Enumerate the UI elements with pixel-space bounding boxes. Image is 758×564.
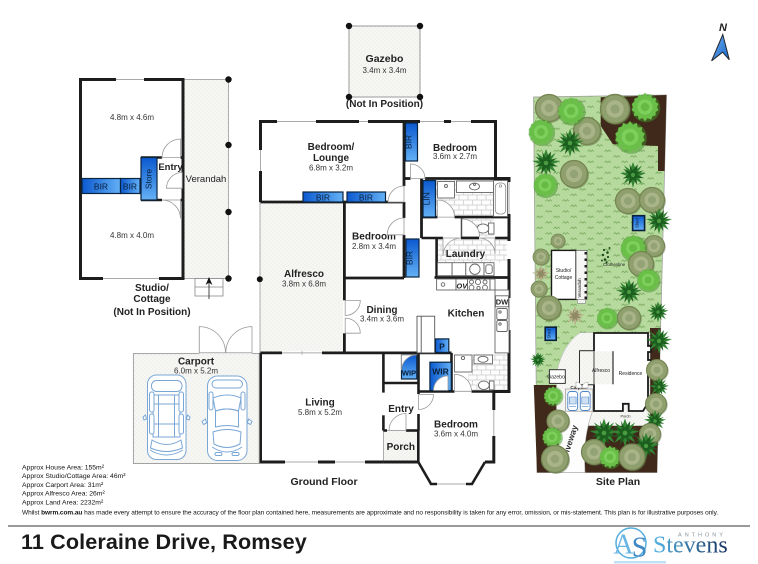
svg-text:Store: Store	[144, 169, 154, 190]
svg-text:DW: DW	[496, 298, 509, 307]
svg-text:BIR: BIR	[359, 193, 373, 203]
svg-text:Approx Carport Area: 31m²: Approx Carport Area: 31m²	[22, 482, 104, 489]
svg-text:BIR: BIR	[94, 182, 108, 192]
svg-text:Verandah: Verandah	[577, 278, 582, 298]
svg-text:Bedroom/: Bedroom/	[308, 142, 355, 153]
svg-text:WIP: WIP	[402, 369, 416, 378]
svg-text:3.4m x 3.6m: 3.4m x 3.6m	[360, 315, 404, 324]
svg-text:Living: Living	[305, 398, 334, 409]
svg-text:Kitchen: Kitchen	[448, 309, 485, 320]
svg-text:Studio/: Studio/	[135, 283, 169, 294]
svg-text:BIR: BIR	[405, 251, 415, 265]
svg-text:Alfresco: Alfresco	[592, 368, 610, 374]
svg-text:Studio/: Studio/	[556, 268, 572, 274]
svg-text:Verandah: Verandah	[186, 174, 227, 185]
svg-text:Entry: Entry	[388, 404, 414, 415]
svg-text:Shed: Shed	[635, 218, 640, 228]
svg-text:3.8m x 6.8m: 3.8m x 6.8m	[282, 280, 326, 289]
svg-text:Stevens: Stevens	[653, 533, 728, 559]
svg-text:(Not In Position): (Not In Position)	[113, 307, 190, 318]
svg-text:Gazebo: Gazebo	[547, 375, 565, 381]
svg-text:Approx Studio/Cottage Area: 46: Approx Studio/Cottage Area: 46m²	[22, 473, 126, 480]
svg-text:BIR: BIR	[123, 182, 137, 192]
svg-text:Whilst bwrm.com.au has made ev: Whilst bwrm.com.au has made every attemp…	[22, 510, 718, 517]
svg-text:3.4m x 3.4m: 3.4m x 3.4m	[362, 66, 406, 75]
svg-text:5.8m x 5.2m: 5.8m x 5.2m	[298, 408, 342, 417]
svg-text:N: N	[719, 22, 728, 34]
svg-text:BIR: BIR	[316, 193, 330, 203]
svg-text:Site Plan: Site Plan	[596, 476, 640, 488]
svg-text:Laundry: Laundry	[446, 249, 486, 260]
svg-text:Approx Land Area: 2232m²: Approx Land Area: 2232m²	[22, 499, 104, 506]
svg-text:Lounge: Lounge	[313, 153, 350, 164]
svg-text:Residence: Residence	[619, 371, 643, 377]
svg-text:Ground Floor: Ground Floor	[290, 476, 357, 488]
svg-text:WIR: WIR	[432, 367, 449, 377]
svg-text:Shed: Shed	[547, 328, 552, 338]
svg-text:Entry: Entry	[158, 162, 183, 173]
svg-text:2.8m x 3.4m: 2.8m x 3.4m	[352, 242, 396, 251]
svg-text:Clothesline: Clothesline	[603, 262, 626, 267]
svg-text:6.0m x 5.2m: 6.0m x 5.2m	[174, 367, 218, 376]
svg-text:Porch: Porch	[387, 442, 415, 453]
svg-text:Cottage: Cottage	[133, 294, 171, 305]
svg-text:11 Coleraine Drive, Romsey: 11 Coleraine Drive, Romsey	[21, 529, 307, 554]
svg-text:Porch: Porch	[621, 415, 631, 419]
svg-text:BIR: BIR	[404, 135, 414, 149]
svg-text:Gazebo: Gazebo	[366, 53, 404, 65]
svg-text:(Not In Position): (Not In Position)	[346, 99, 423, 110]
svg-text:S: S	[632, 533, 648, 564]
svg-text:OV: OV	[456, 282, 468, 291]
svg-text:3.6m x 4.0m: 3.6m x 4.0m	[434, 430, 478, 439]
svg-text:LIN: LIN	[421, 192, 431, 205]
svg-text:Approx House Area: 155m²: Approx House Area: 155m²	[22, 465, 105, 472]
svg-text:4.8m x 4.6m: 4.8m x 4.6m	[110, 113, 154, 122]
svg-text:3.6m x 2.7m: 3.6m x 2.7m	[433, 152, 477, 161]
svg-text:P: P	[439, 342, 445, 352]
svg-text:6.8m x 3.2m: 6.8m x 3.2m	[309, 164, 353, 173]
svg-text:4.8m x 4.0m: 4.8m x 4.0m	[110, 231, 154, 240]
svg-text:Approx Alfresco Area: 26m²: Approx Alfresco Area: 26m²	[22, 491, 105, 498]
svg-text:Alfresco: Alfresco	[284, 269, 324, 280]
svg-text:Cottage: Cottage	[555, 275, 573, 281]
